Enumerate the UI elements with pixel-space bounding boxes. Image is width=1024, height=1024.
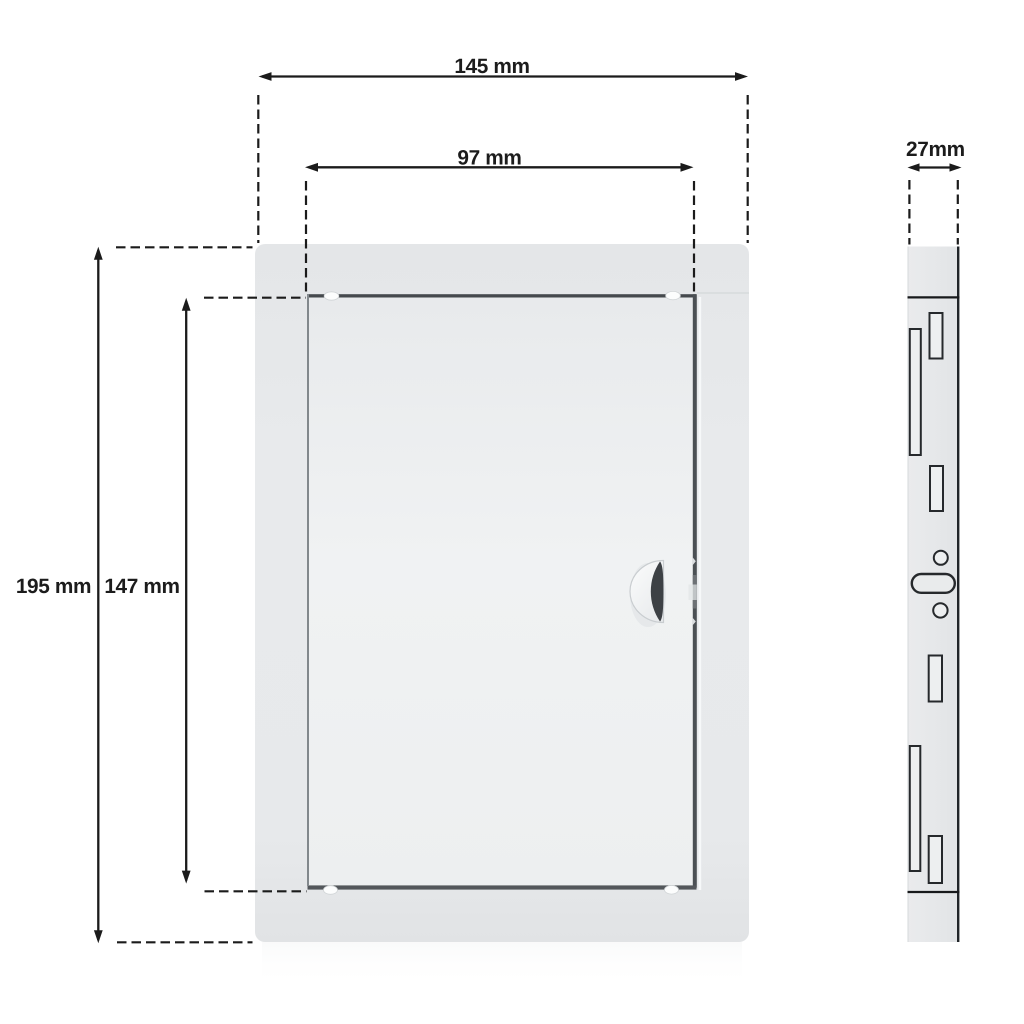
svg-text:145 mm: 145 mm: [454, 55, 529, 78]
svg-text:147 mm: 147 mm: [104, 575, 179, 598]
svg-text:27mm: 27mm: [906, 138, 965, 161]
svg-text:195 mm: 195 mm: [16, 575, 91, 598]
svg-text:97 mm: 97 mm: [457, 146, 521, 169]
